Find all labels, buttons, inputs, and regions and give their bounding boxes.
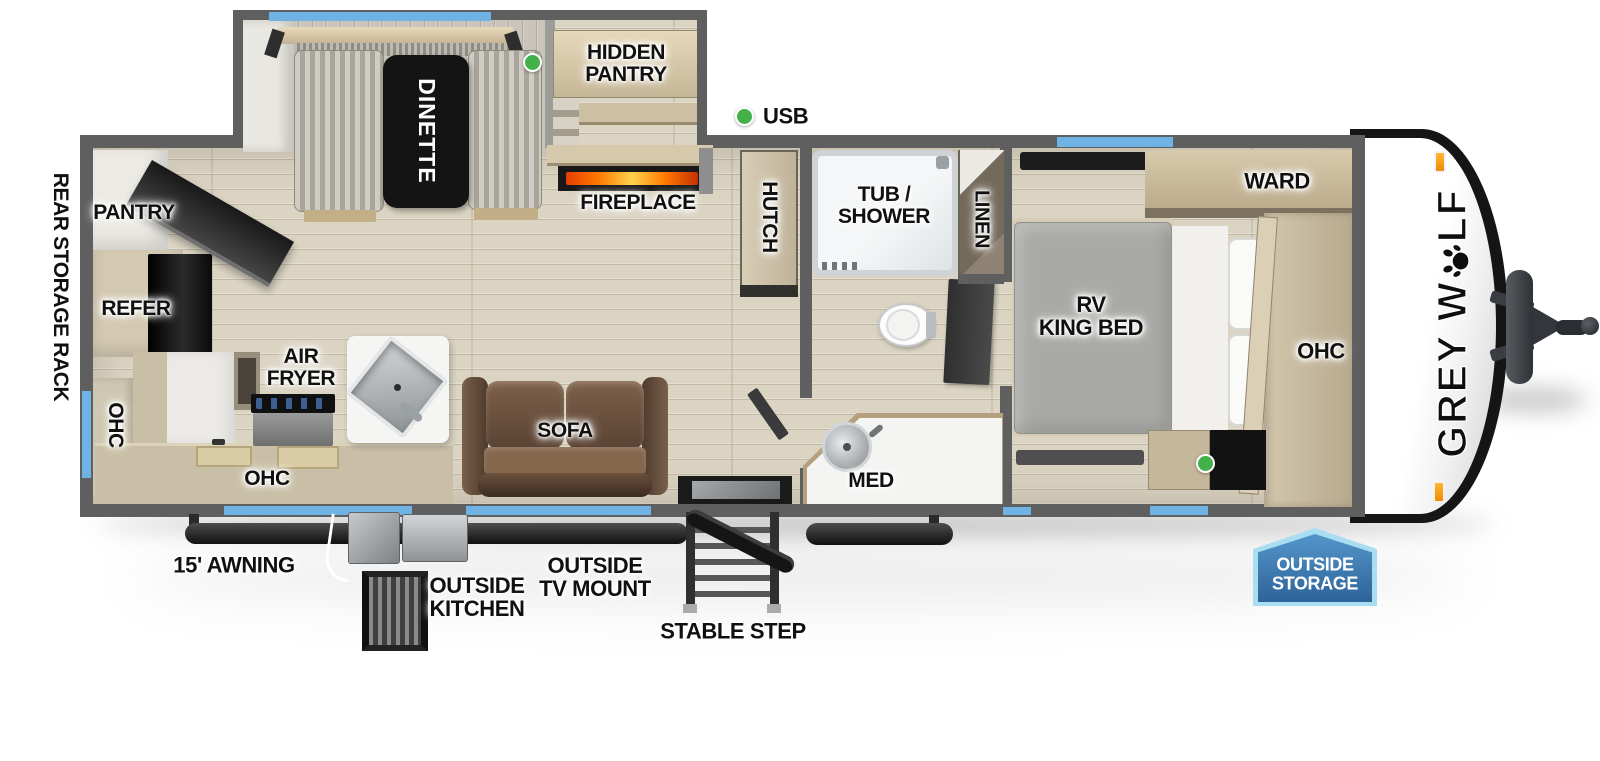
bedroom-door xyxy=(943,279,994,385)
shower-head-icon xyxy=(936,156,949,169)
outside-kitchen-box-2 xyxy=(402,514,468,562)
tub-shower-label: TUB / SHOWER xyxy=(838,184,930,228)
refer-label: REFER xyxy=(101,298,170,320)
step-foot-left xyxy=(683,604,697,613)
ward-label: WARD xyxy=(1244,171,1310,194)
counter-faucet-1 xyxy=(212,439,225,445)
pantry-label: PANTRY xyxy=(93,202,175,224)
hitch-ball-icon xyxy=(1581,317,1599,335)
tub-faucet-row xyxy=(822,262,862,270)
rv-king-bed-label: RV KING BED xyxy=(1039,294,1143,340)
fireplace-flame xyxy=(566,172,698,185)
rear-storage-rack-label: REAR STORAGE RACK xyxy=(49,173,71,402)
outside-kitchen-label: OUTSIDE KITCHEN xyxy=(430,575,525,621)
kitchen-backsplash xyxy=(165,352,235,445)
island-sink-drain xyxy=(394,384,401,391)
sink-cover-1 xyxy=(196,446,252,467)
stable-step-label: STABLE STEP xyxy=(660,621,806,644)
top-wall-front xyxy=(697,135,1365,148)
fireplace-pillar xyxy=(699,148,713,194)
sofa-seat xyxy=(484,447,646,475)
usb-legend-dot xyxy=(735,107,754,126)
bedroom-tv xyxy=(1020,152,1162,170)
hidden-pantry-label: HIDDEN PANTRY xyxy=(585,42,667,86)
range-body xyxy=(253,413,333,446)
usb-port-nightstand xyxy=(1196,454,1215,473)
window-bath-bottom xyxy=(1003,507,1031,515)
grill-icon xyxy=(362,571,428,651)
hutch-base xyxy=(740,285,798,297)
slide-wall-left xyxy=(233,10,243,148)
window-sofa-bottom xyxy=(466,506,651,515)
ohc-bedroom-label: OHC xyxy=(1297,341,1345,364)
paw-print-icon xyxy=(1435,244,1469,278)
window-rear-wall xyxy=(82,391,91,478)
dinette-bench-left xyxy=(294,50,384,212)
usb-legend-label: USB xyxy=(763,106,808,129)
linen-closet-wall xyxy=(958,274,1004,284)
sofa-front-roll xyxy=(478,473,652,497)
ohc-rear-label: OHC xyxy=(104,402,126,447)
dinette-bench-right xyxy=(468,50,542,210)
range-burners xyxy=(256,398,330,409)
brand-text-suffix: LF xyxy=(1429,188,1476,242)
hitch-jack xyxy=(1506,270,1533,384)
toilet-hinge xyxy=(926,312,936,338)
toilet-lid xyxy=(886,309,920,341)
sink-cover-2 xyxy=(277,446,339,469)
front-interior-wall xyxy=(1352,135,1365,517)
step-rung-5 xyxy=(695,591,770,597)
awning-label: 15' AWNING xyxy=(173,555,294,578)
ohc-counter-label: OHC xyxy=(244,468,289,490)
brand-logo: GREY W LF xyxy=(1426,173,1478,473)
dinette-label: DINETTE xyxy=(414,78,438,183)
fireplace-label: FIREPLACE xyxy=(580,192,695,214)
awning-bar-front xyxy=(806,523,953,545)
clearance-light-top-icon xyxy=(1434,151,1446,173)
top-wall-rear xyxy=(80,135,243,148)
bed-sheet-band xyxy=(1172,226,1228,430)
entry-step-tread xyxy=(692,481,780,499)
slide-wall-right xyxy=(697,10,707,148)
hutch-label: HUTCH xyxy=(758,181,780,253)
window-bedroom-top xyxy=(1057,137,1173,147)
linen-label: LINEN xyxy=(971,190,992,248)
step-foot-right xyxy=(767,604,781,613)
left-counter xyxy=(133,352,167,444)
fireplace-counter xyxy=(547,145,713,166)
floorplan-canvas: GREY W LF DINETTE HIDDEN PANTRY xyxy=(0,0,1600,761)
dinette-valance xyxy=(277,27,513,44)
usb-port-dinette xyxy=(523,53,542,72)
bath-wall-left-upper xyxy=(800,148,812,398)
dinette-bench-base-right xyxy=(474,208,538,220)
nightstand-black xyxy=(1210,430,1266,490)
window-bedroom-bottom xyxy=(1150,506,1208,515)
step-rung-4 xyxy=(695,575,770,581)
brand-text-prefix: GREY W xyxy=(1429,280,1476,458)
hidden-pantry-shelf xyxy=(579,103,697,125)
med-label: MED xyxy=(848,470,893,492)
clearance-light-bottom-icon xyxy=(1433,481,1445,503)
outside-tv-mount-label: OUTSIDE TV MOUNT xyxy=(539,555,651,601)
sofa-label: SOFA xyxy=(537,420,593,442)
air-fryer-label: AIR FRYER xyxy=(267,346,335,390)
dinette-bench-base-left xyxy=(304,210,376,222)
window-slide-top xyxy=(269,12,491,21)
vanity-sink-drain xyxy=(843,443,851,451)
bedroom-bench xyxy=(1016,450,1144,465)
outside-storage-label: OUTSIDE STORAGE xyxy=(1272,555,1358,592)
